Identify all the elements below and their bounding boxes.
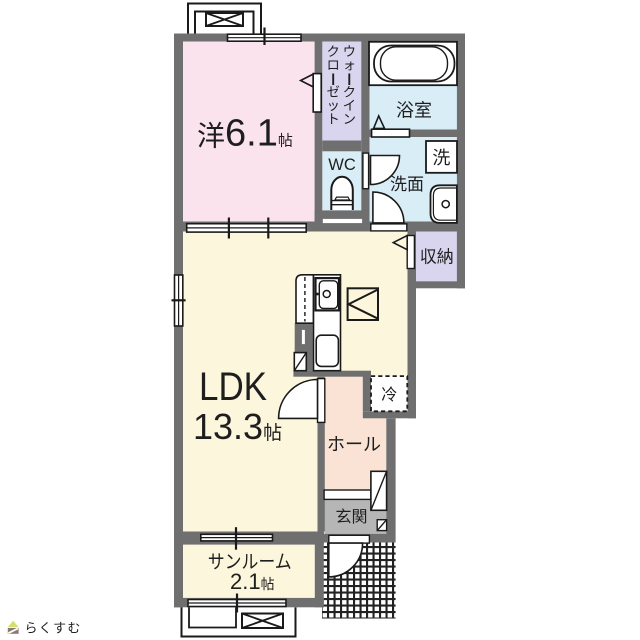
svg-text:浴室: 浴室 — [396, 100, 432, 120]
svg-text:らくすむ: らくすむ — [25, 621, 82, 636]
svg-text:クロゼット: クロゼット — [327, 44, 340, 127]
svg-text:収納: 収納 — [420, 247, 454, 266]
svg-text:ウォクイン: ウォクイン — [343, 44, 356, 127]
svg-text:冷: 冷 — [381, 386, 397, 404]
svg-text:玄関: 玄関 — [335, 508, 367, 526]
svg-text:ホール: ホール — [327, 435, 381, 455]
svg-text:LDK: LDK — [199, 365, 267, 409]
svg-text:WC: WC — [328, 156, 356, 174]
svg-text:洗: 洗 — [432, 148, 450, 168]
svg-text:洗面: 洗面 — [390, 175, 424, 194]
